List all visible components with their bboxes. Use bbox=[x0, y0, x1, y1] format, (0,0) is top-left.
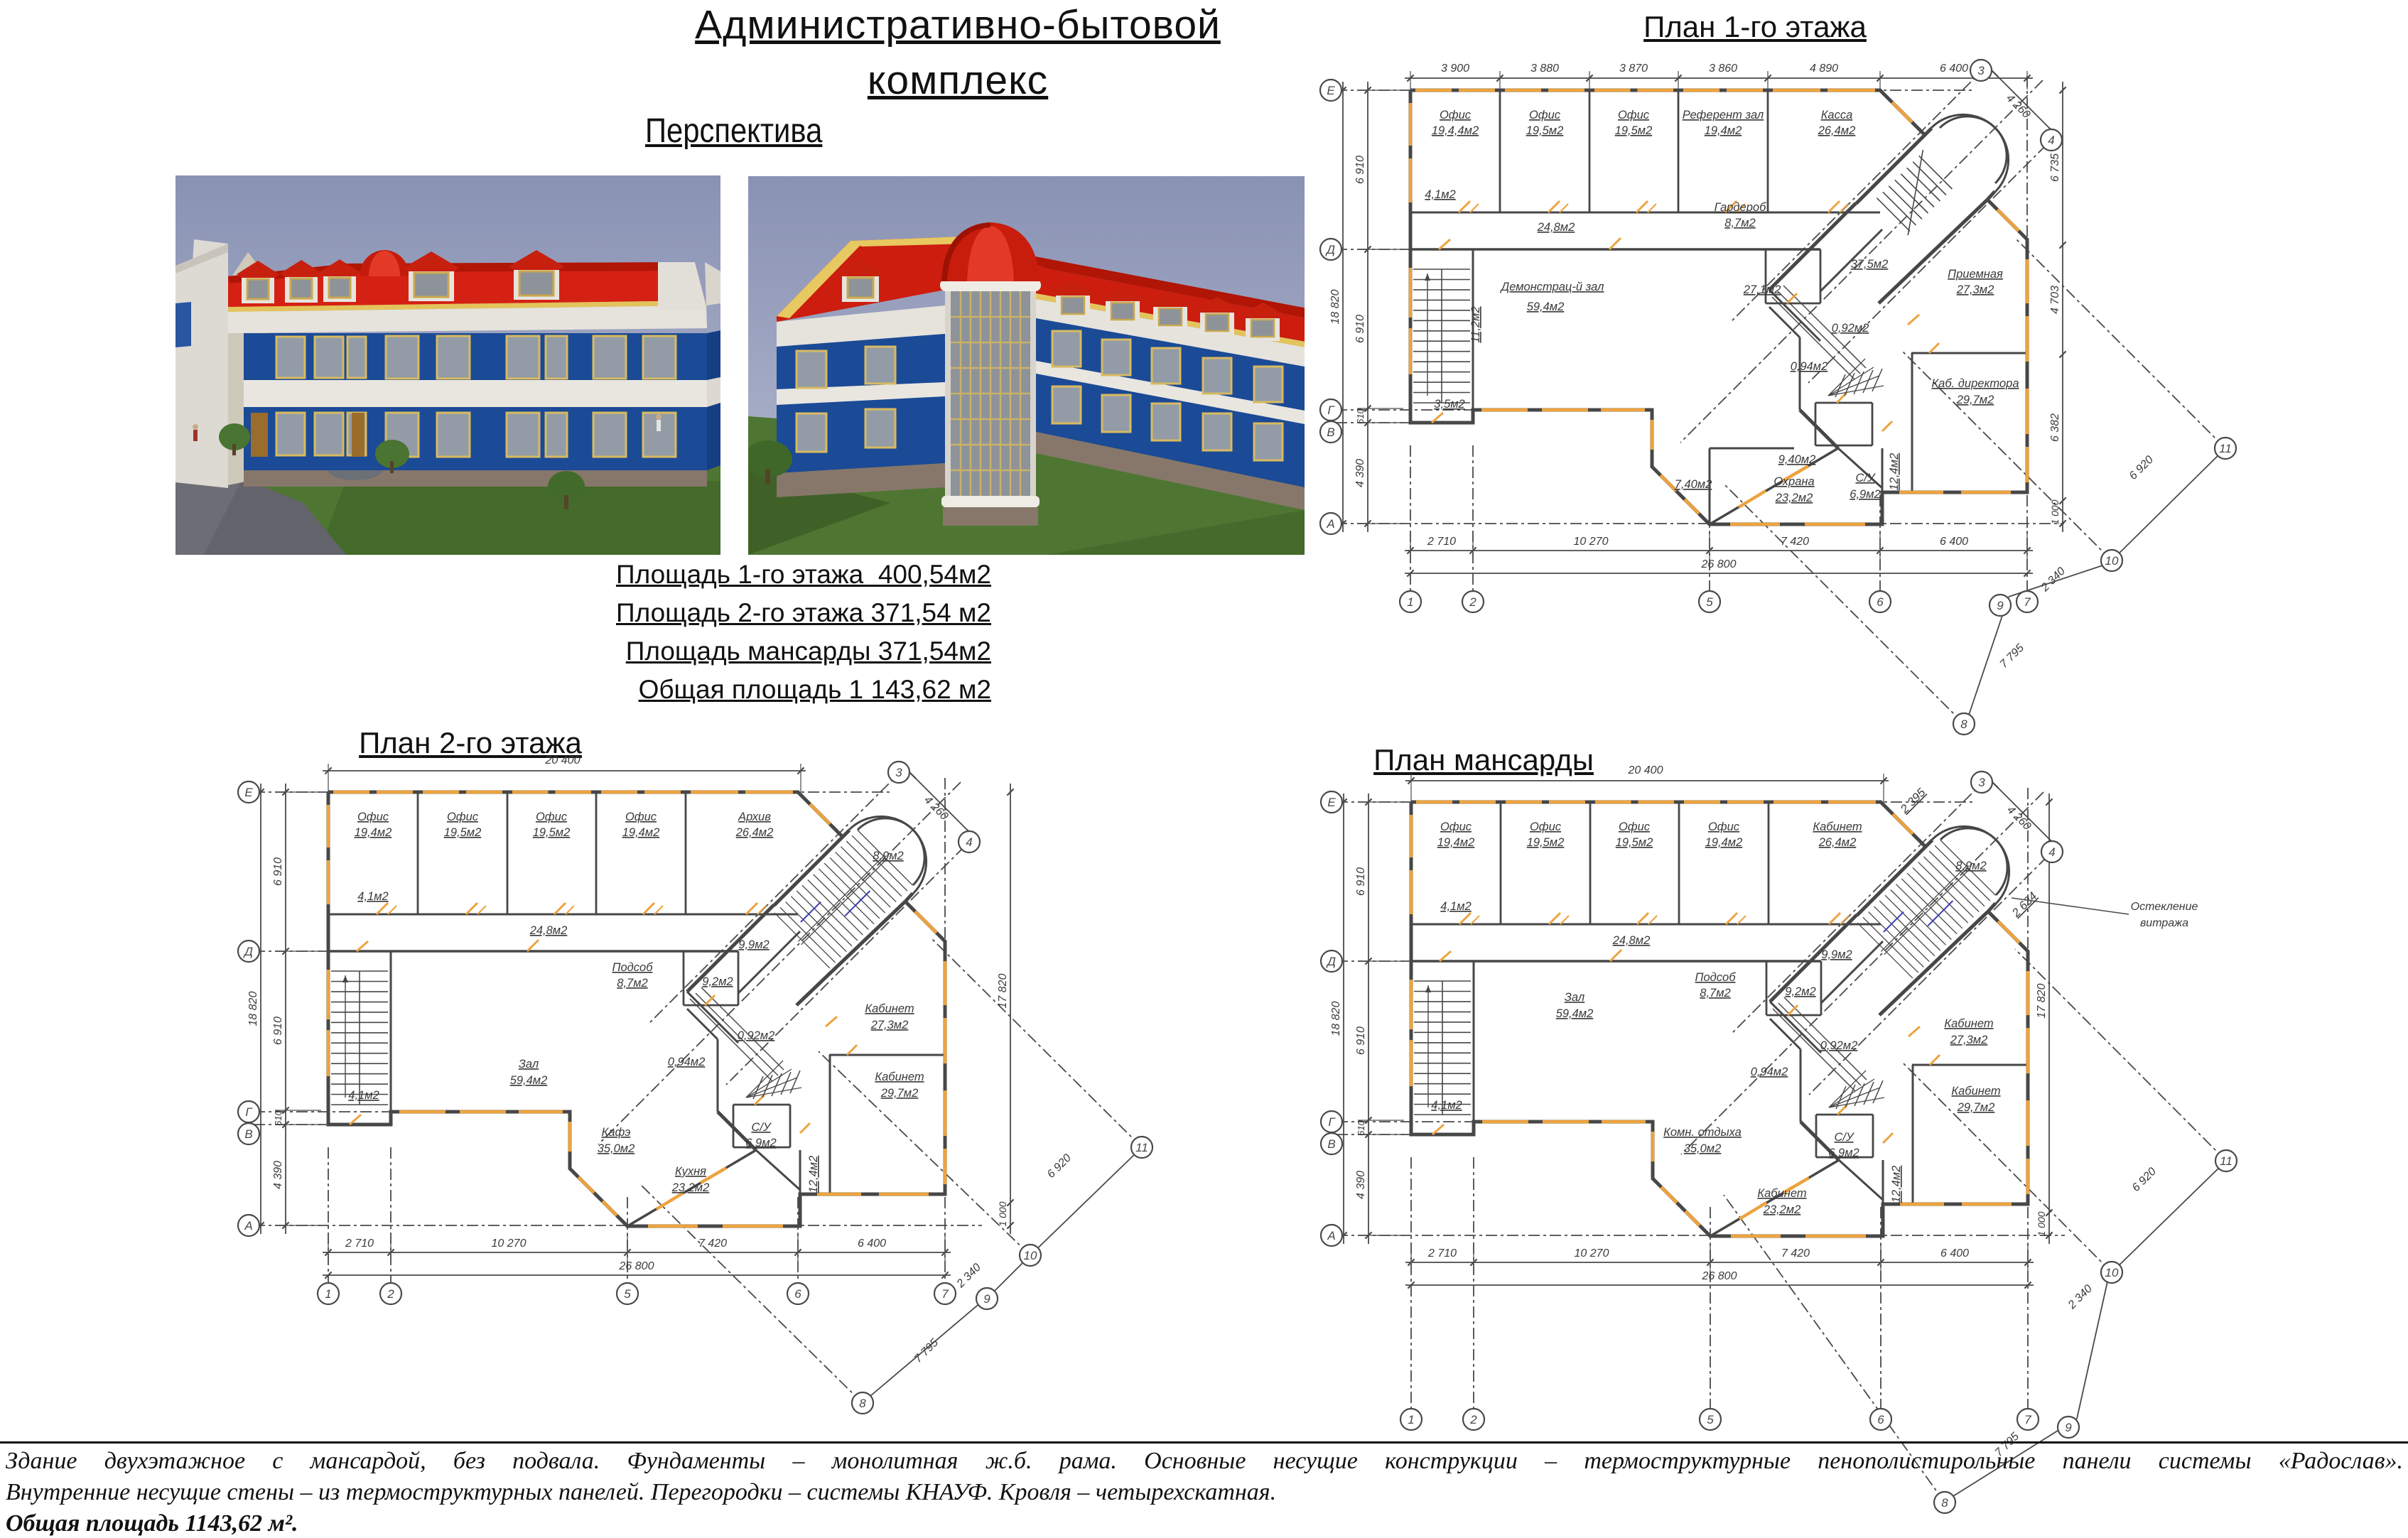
svg-text:12,4м2: 12,4м2 bbox=[1890, 1166, 1903, 1203]
svg-text:Офис: Офис bbox=[536, 811, 568, 823]
svg-text:1 000: 1 000 bbox=[2036, 1211, 2047, 1236]
svg-text:20 400: 20 400 bbox=[545, 754, 581, 767]
svg-text:Д: Д bbox=[1326, 955, 1336, 968]
svg-text:17 820: 17 820 bbox=[2036, 983, 2048, 1018]
svg-text:6,9м2: 6,9м2 bbox=[745, 1137, 776, 1149]
svg-text:29,7м2: 29,7м2 bbox=[1956, 394, 1994, 406]
svg-text:2 634: 2 634 bbox=[2009, 889, 2040, 920]
svg-text:10: 10 bbox=[2105, 1266, 2119, 1279]
svg-text:6 910: 6 910 bbox=[1354, 156, 1366, 184]
svg-text:10 270: 10 270 bbox=[1575, 1247, 1609, 1260]
svg-text:2: 2 bbox=[1469, 595, 1476, 609]
svg-text:Гардероб: Гардероб bbox=[1715, 201, 1766, 214]
svg-text:2 340: 2 340 bbox=[2039, 565, 2068, 595]
svg-text:С/У: С/У bbox=[751, 1121, 772, 1134]
svg-text:19,5м2: 19,5м2 bbox=[1615, 124, 1653, 137]
svg-text:Д: Д bbox=[243, 945, 253, 958]
svg-text:2 710: 2 710 bbox=[1427, 1247, 1457, 1260]
svg-text:Кафэ: Кафэ bbox=[602, 1126, 631, 1139]
svg-text:10: 10 bbox=[2105, 554, 2119, 568]
svg-text:6: 6 bbox=[1877, 1413, 1884, 1426]
svg-text:7,40м2: 7,40м2 bbox=[1675, 478, 1712, 491]
svg-text:6 400: 6 400 bbox=[1940, 1247, 1969, 1260]
svg-text:4 703: 4 703 bbox=[2049, 286, 2061, 314]
svg-text:27,3м2: 27,3м2 bbox=[870, 1019, 909, 1031]
svg-text:8,9м2: 8,9м2 bbox=[1955, 860, 1986, 872]
svg-text:23,2м2: 23,2м2 bbox=[1775, 492, 1813, 504]
svg-text:610: 610 bbox=[1356, 1120, 1366, 1135]
svg-text:2: 2 bbox=[1469, 1413, 1477, 1426]
svg-text:6 920: 6 920 bbox=[2127, 454, 2156, 482]
svg-text:Офис: Офис bbox=[1440, 821, 1472, 833]
svg-text:5: 5 bbox=[624, 1287, 631, 1301]
svg-text:4,1м2: 4,1м2 bbox=[1440, 900, 1471, 913]
svg-text:6 400: 6 400 bbox=[1940, 63, 1968, 75]
svg-text:24,8м2: 24,8м2 bbox=[1612, 934, 1651, 947]
svg-text:10 270: 10 270 bbox=[492, 1238, 527, 1250]
svg-text:6 920: 6 920 bbox=[2130, 1166, 2159, 1194]
svg-text:Кабинет: Кабинет bbox=[1757, 1187, 1806, 1200]
svg-text:26 800: 26 800 bbox=[1702, 1270, 1737, 1282]
svg-text:0,94м2: 0,94м2 bbox=[1791, 360, 1828, 373]
svg-text:8,7м2: 8,7м2 bbox=[1700, 987, 1730, 1000]
svg-text:7 420: 7 420 bbox=[1781, 1247, 1810, 1260]
svg-text:23,2м2: 23,2м2 bbox=[671, 1181, 710, 1194]
svg-text:9,2м2: 9,2м2 bbox=[1785, 985, 1815, 998]
svg-text:Кабинет: Кабинет bbox=[1813, 821, 1862, 833]
svg-text:12,4м2: 12,4м2 bbox=[807, 1156, 820, 1193]
svg-text:Кабинет: Кабинет bbox=[865, 1002, 914, 1015]
svg-text:4,1м2: 4,1м2 bbox=[357, 890, 388, 903]
svg-text:9: 9 bbox=[1997, 599, 2004, 612]
svg-text:6 910: 6 910 bbox=[272, 857, 284, 886]
svg-text:8,7м2: 8,7м2 bbox=[1724, 217, 1755, 229]
svg-text:7 420: 7 420 bbox=[698, 1238, 727, 1250]
svg-text:37,5м2: 37,5м2 bbox=[1851, 258, 1889, 271]
svg-text:9,9м2: 9,9м2 bbox=[1821, 948, 1852, 961]
svg-text:Подсоб: Подсоб bbox=[1695, 971, 1737, 984]
svg-text:1: 1 bbox=[1408, 1413, 1414, 1426]
svg-text:1 000: 1 000 bbox=[997, 1201, 1008, 1226]
svg-text:Подсоб: Подсоб bbox=[612, 961, 654, 974]
svg-text:27,3м2: 27,3м2 bbox=[1950, 1034, 1988, 1046]
svg-text:19,5м2: 19,5м2 bbox=[1616, 836, 1653, 849]
svg-text:6 910: 6 910 bbox=[272, 1017, 284, 1045]
svg-text:4,1м2: 4,1м2 bbox=[1425, 188, 1455, 201]
svg-text:19,4м2: 19,4м2 bbox=[1705, 836, 1743, 849]
svg-text:9: 9 bbox=[2065, 1421, 2072, 1434]
svg-text:24,8м2: 24,8м2 bbox=[529, 924, 568, 937]
svg-text:9: 9 bbox=[983, 1292, 990, 1306]
svg-text:1: 1 bbox=[1407, 595, 1413, 609]
svg-text:11: 11 bbox=[2220, 1154, 2232, 1168]
svg-text:2 710: 2 710 bbox=[345, 1238, 374, 1250]
svg-text:23,2м2: 23,2м2 bbox=[1763, 1203, 1801, 1216]
svg-text:19,4м2: 19,4м2 bbox=[622, 826, 660, 839]
svg-text:4,1м2: 4,1м2 bbox=[348, 1089, 379, 1102]
svg-text:610: 610 bbox=[273, 1110, 284, 1125]
svg-text:Зал: Зал bbox=[1565, 991, 1584, 1004]
svg-text:26,4м2: 26,4м2 bbox=[1818, 836, 1857, 849]
svg-text:С/У: С/У bbox=[1855, 472, 1876, 484]
svg-text:7: 7 bbox=[2024, 1413, 2031, 1426]
svg-text:35,0м2: 35,0м2 bbox=[1684, 1142, 1722, 1155]
svg-text:3 860: 3 860 bbox=[1709, 63, 1737, 75]
svg-text:Кабинет: Кабинет bbox=[1951, 1085, 2000, 1098]
svg-text:Офис: Офис bbox=[1619, 821, 1651, 833]
svg-text:Охрана: Охрана bbox=[1773, 475, 1814, 488]
svg-text:С/У: С/У bbox=[1834, 1131, 1854, 1144]
svg-text:0,92м2: 0,92м2 bbox=[738, 1029, 775, 1042]
svg-text:1 000: 1 000 bbox=[2049, 499, 2061, 524]
svg-text:8,9м2: 8,9м2 bbox=[873, 850, 903, 862]
svg-text:2 710: 2 710 bbox=[1427, 536, 1456, 548]
svg-text:19,4м2: 19,4м2 bbox=[1705, 124, 1742, 137]
svg-text:6,9м2: 6,9м2 bbox=[1828, 1147, 1859, 1159]
svg-text:8: 8 bbox=[1960, 717, 1967, 731]
svg-text:А: А bbox=[1326, 517, 1334, 531]
svg-text:В: В bbox=[1327, 426, 1334, 439]
svg-text:3: 3 bbox=[895, 766, 902, 779]
svg-text:5: 5 bbox=[1707, 1413, 1714, 1426]
svg-text:10 270: 10 270 bbox=[1574, 536, 1609, 548]
svg-text:11: 11 bbox=[2219, 442, 2232, 455]
svg-text:59,4м2: 59,4м2 bbox=[1556, 1007, 1594, 1020]
svg-text:3: 3 bbox=[1977, 64, 1985, 77]
svg-text:11: 11 bbox=[1135, 1141, 1148, 1154]
svg-text:6 735: 6 735 bbox=[2049, 153, 2061, 182]
svg-text:610: 610 bbox=[1355, 408, 1366, 423]
svg-text:6 400: 6 400 bbox=[858, 1238, 886, 1250]
svg-text:4: 4 bbox=[2048, 845, 2055, 859]
svg-text:Офис: Офис bbox=[1529, 109, 1561, 121]
svg-text:19,4м2: 19,4м2 bbox=[355, 826, 392, 839]
svg-text:4,1м2: 4,1м2 bbox=[1431, 1099, 1462, 1112]
svg-text:18 820: 18 820 bbox=[1330, 1001, 1342, 1036]
svg-text:19,4м2: 19,4м2 bbox=[1437, 836, 1475, 849]
svg-text:2: 2 bbox=[387, 1287, 394, 1301]
svg-text:8: 8 bbox=[859, 1397, 866, 1410]
svg-text:19,4,4м2: 19,4,4м2 bbox=[1432, 124, 1479, 137]
svg-text:6,9м2: 6,9м2 bbox=[1850, 488, 1880, 501]
svg-text:6 400: 6 400 bbox=[1940, 536, 1968, 548]
svg-text:Архив: Архив bbox=[738, 811, 771, 823]
svg-text:26,4м2: 26,4м2 bbox=[1818, 124, 1856, 137]
svg-text:Кабинет: Кабинет bbox=[875, 1071, 924, 1083]
svg-text:Д: Д bbox=[1325, 243, 1335, 256]
svg-text:Е: Е bbox=[244, 786, 253, 799]
svg-text:6: 6 bbox=[1877, 595, 1884, 609]
svg-text:5: 5 bbox=[1706, 595, 1713, 609]
svg-text:Е: Е bbox=[1327, 84, 1335, 97]
svg-text:В: В bbox=[244, 1127, 252, 1141]
svg-text:20 400: 20 400 bbox=[1628, 764, 1663, 776]
svg-text:3,5м2: 3,5м2 bbox=[1434, 398, 1464, 411]
svg-text:6 910: 6 910 bbox=[1355, 1027, 1367, 1055]
svg-text:Референт зал: Референт зал bbox=[1683, 109, 1764, 121]
svg-text:3: 3 bbox=[1978, 776, 1985, 789]
svg-text:Офис: Офис bbox=[625, 811, 657, 823]
svg-text:35,0м2: 35,0м2 bbox=[598, 1142, 635, 1155]
svg-text:Комн. отдыха: Комн. отдыха bbox=[1663, 1126, 1742, 1139]
svg-text:24,8м2: 24,8м2 bbox=[1537, 221, 1575, 234]
svg-text:Каб. директора: Каб. директора bbox=[1931, 377, 2019, 390]
svg-text:2 340: 2 340 bbox=[2066, 1283, 2095, 1312]
svg-text:2 395: 2 395 bbox=[1898, 786, 1928, 816]
svg-text:6: 6 bbox=[794, 1287, 801, 1301]
svg-text:4: 4 bbox=[2048, 134, 2054, 147]
svg-text:0,92м2: 0,92м2 bbox=[1832, 322, 1869, 335]
svg-text:витража: витража bbox=[2140, 917, 2188, 929]
svg-text:7: 7 bbox=[941, 1287, 949, 1301]
svg-text:59,4м2: 59,4м2 bbox=[1527, 300, 1565, 313]
svg-text:Касса: Касса bbox=[1821, 109, 1853, 121]
svg-text:Офис: Офис bbox=[1440, 109, 1472, 121]
svg-text:10: 10 bbox=[1024, 1249, 1037, 1262]
svg-text:Офис: Офис bbox=[447, 811, 479, 823]
svg-text:18 820: 18 820 bbox=[1329, 289, 1341, 324]
svg-text:Офис: Офис bbox=[1708, 821, 1740, 833]
svg-text:Остекление: Остекление bbox=[2131, 901, 2198, 913]
svg-text:11,2м2: 11,2м2 bbox=[1469, 306, 1482, 342]
svg-text:Офис: Офис bbox=[1618, 109, 1650, 121]
svg-text:6 920: 6 920 bbox=[1045, 1152, 1074, 1181]
svg-text:Е: Е bbox=[1327, 796, 1336, 809]
svg-text:6 910: 6 910 bbox=[1355, 867, 1367, 896]
svg-text:9,40м2: 9,40м2 bbox=[1778, 453, 1816, 466]
svg-text:Офис: Офис bbox=[1530, 821, 1562, 833]
svg-text:18 820: 18 820 bbox=[247, 991, 259, 1026]
svg-text:26 800: 26 800 bbox=[1701, 558, 1737, 570]
svg-text:8,7м2: 8,7м2 bbox=[617, 977, 647, 990]
svg-text:29,7м2: 29,7м2 bbox=[1957, 1101, 1995, 1114]
svg-text:Офис: Офис bbox=[357, 811, 389, 823]
svg-text:3 870: 3 870 bbox=[1619, 63, 1648, 75]
svg-text:19,5м2: 19,5м2 bbox=[444, 826, 482, 839]
svg-text:9,2м2: 9,2м2 bbox=[702, 975, 733, 988]
svg-text:26,4м2: 26,4м2 bbox=[735, 826, 774, 839]
svg-text:4 890: 4 890 bbox=[1810, 63, 1838, 75]
svg-text:3 900: 3 900 bbox=[1441, 63, 1469, 75]
svg-text:4 390: 4 390 bbox=[1354, 459, 1366, 487]
svg-text:Зал: Зал bbox=[519, 1058, 539, 1071]
svg-text:7 795: 7 795 bbox=[1998, 642, 2026, 671]
svg-text:7 420: 7 420 bbox=[1781, 536, 1809, 548]
svg-text:Приемная: Приемная bbox=[1948, 268, 2003, 281]
svg-text:7 795: 7 795 bbox=[912, 1337, 941, 1365]
svg-text:2 340: 2 340 bbox=[954, 1262, 983, 1291]
svg-text:А: А bbox=[1327, 1229, 1335, 1242]
svg-text:6 910: 6 910 bbox=[1354, 315, 1366, 343]
svg-text:12,4м2: 12,4м2 bbox=[1888, 453, 1901, 491]
svg-text:0,94м2: 0,94м2 bbox=[668, 1056, 706, 1068]
svg-text:1: 1 bbox=[325, 1287, 331, 1301]
svg-text:19,5м2: 19,5м2 bbox=[1527, 836, 1565, 849]
svg-text:0,94м2: 0,94м2 bbox=[1751, 1066, 1788, 1078]
svg-text:27,3м2: 27,3м2 bbox=[1956, 283, 1994, 296]
svg-text:6 382: 6 382 bbox=[2049, 413, 2061, 442]
svg-text:А: А bbox=[244, 1219, 252, 1233]
svg-text:4 390: 4 390 bbox=[1355, 1171, 1367, 1199]
svg-text:Демонстрац-й зал: Демонстрац-й зал bbox=[1500, 281, 1604, 293]
svg-text:19,5м2: 19,5м2 bbox=[533, 826, 571, 839]
svg-text:3 880: 3 880 bbox=[1530, 63, 1559, 75]
svg-text:19,5м2: 19,5м2 bbox=[1526, 124, 1564, 137]
svg-text:0,92м2: 0,92м2 bbox=[1820, 1039, 1858, 1052]
svg-text:В: В bbox=[1327, 1137, 1335, 1151]
svg-text:Кабинет: Кабинет bbox=[1944, 1017, 1993, 1030]
svg-text:59,4м2: 59,4м2 bbox=[510, 1074, 548, 1087]
svg-text:17 820: 17 820 bbox=[997, 973, 1009, 1008]
svg-text:Кухня: Кухня bbox=[675, 1165, 706, 1178]
svg-text:4: 4 bbox=[966, 835, 972, 849]
svg-text:26 800: 26 800 bbox=[619, 1260, 654, 1272]
svg-text:9,9м2: 9,9м2 bbox=[738, 938, 769, 951]
svg-text:7: 7 bbox=[2024, 595, 2031, 609]
svg-text:27,1м2: 27,1м2 bbox=[1743, 283, 1781, 296]
svg-text:4 390: 4 390 bbox=[272, 1161, 284, 1189]
svg-text:29,7м2: 29,7м2 bbox=[880, 1087, 919, 1100]
